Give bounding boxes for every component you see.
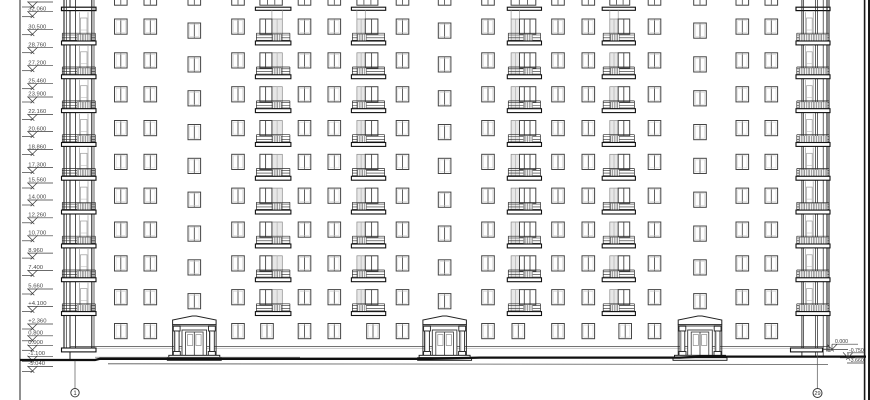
- svg-text:10.700: 10.700: [28, 231, 47, 237]
- svg-text:-1.100: -1.100: [28, 351, 45, 357]
- svg-text:28.760: 28.760: [28, 42, 47, 48]
- svg-text:18.860: 18.860: [28, 144, 47, 150]
- svg-text:-5.040: -5.040: [28, 361, 45, 367]
- svg-text:12.260: 12.260: [28, 213, 47, 219]
- svg-text:30.500: 30.500: [28, 24, 47, 30]
- svg-text:32.060: 32.060: [28, 6, 47, 12]
- svg-text:17.300: 17.300: [28, 162, 47, 168]
- svg-text:23.900: 23.900: [28, 92, 47, 98]
- svg-text:8.960: 8.960: [28, 248, 43, 254]
- svg-text:22.160: 22.160: [28, 109, 47, 115]
- svg-text:29: 29: [814, 391, 820, 397]
- svg-text:25.460: 25.460: [28, 78, 47, 84]
- svg-text:20.600: 20.600: [28, 126, 47, 132]
- svg-text:+2.360: +2.360: [28, 319, 47, 325]
- svg-text:7.400: 7.400: [28, 265, 43, 271]
- svg-text:0.000: 0.000: [835, 339, 848, 345]
- svg-text:0.800: 0.800: [28, 331, 43, 337]
- svg-text:14.000: 14.000: [28, 195, 47, 201]
- svg-text:15.560: 15.560: [28, 178, 47, 184]
- svg-text:0.000: 0.000: [28, 340, 43, 346]
- svg-text:+4.100: +4.100: [28, 301, 47, 307]
- svg-text:27.200: 27.200: [28, 60, 47, 66]
- svg-text:5.660: 5.660: [28, 284, 43, 290]
